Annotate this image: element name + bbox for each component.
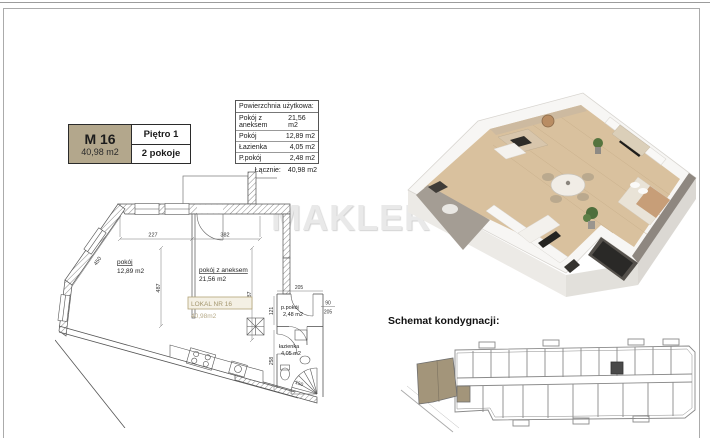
- wall-balcony-side: [248, 172, 256, 204]
- kitchen-fixtures: [170, 345, 263, 383]
- floor-schematic: [393, 330, 705, 438]
- area-table-header: Powierzchnia użytkowa:: [236, 101, 318, 113]
- room-aneks-area: 21,56 m2: [199, 276, 226, 283]
- dim-258: 258: [269, 357, 275, 366]
- room-pokoj-area: 12,89 m2: [117, 268, 144, 275]
- area-table-box: Powierzchnia użytkowa: Pokój z aneksem 2…: [235, 100, 319, 164]
- dim-227: 227: [148, 233, 157, 239]
- unit-id: M 16: [84, 131, 115, 147]
- row-value: 12,89 m2: [286, 133, 315, 140]
- floor-plan-drawing: 227 382 487 587 450 205 121 258 90 205 1…: [55, 168, 355, 428]
- unit-card-info-cells: Piętro 1 2 pokoje: [132, 125, 190, 163]
- dim-487: 487: [156, 283, 162, 292]
- room-ppokoj-area: 2,48 m2: [283, 312, 303, 318]
- table-row: Pokój 12,89 m2: [236, 131, 318, 142]
- render-3d-apartment: [408, 93, 696, 297]
- unit-floor: Piętro 1: [132, 125, 190, 144]
- dim-150: 150: [294, 380, 304, 389]
- row-label: Łazienka: [239, 144, 267, 151]
- lokal-label: LOKAL NR 16 40,98m2: [188, 297, 252, 320]
- area-table: Powierzchnia użytkowa: Pokój z aneksem 2…: [235, 100, 319, 174]
- listing-page: M 16 40,98 m2 Piętro 1 2 pokoje Powierzc…: [0, 0, 710, 438]
- dim-121: 121: [269, 307, 275, 316]
- balcony-door: [197, 205, 223, 241]
- table-row: Pokój z aneksem 21,56 m2: [236, 113, 318, 131]
- room-lazienka-name: łazienka: [279, 344, 300, 350]
- row-label: Pokój: [239, 133, 257, 140]
- top-rule: [0, 2, 710, 3]
- room-aneks-name: pokój z aneksem: [199, 267, 248, 274]
- row-value: 2,48 m2: [290, 155, 315, 162]
- render-3d: [398, 85, 710, 320]
- unit-total-area: 40,98 m2: [81, 147, 119, 158]
- row-value: 21,56 m2: [288, 115, 315, 129]
- room-lazienka-area: 4,05 m2: [281, 351, 301, 357]
- dim-382: 382: [220, 233, 229, 239]
- table-row: Łazienka 4,05 m2: [236, 142, 318, 153]
- table-row: P.pokój 2,48 m2: [236, 153, 318, 163]
- lokal-label-line2: 40,98m2: [191, 313, 217, 320]
- dim-door-height: 205: [324, 310, 333, 316]
- room-ppokoj-name: p.pokój: [281, 305, 299, 311]
- unit-card: M 16 40,98 m2 Piętro 1 2 pokoje: [68, 124, 191, 164]
- unit-card-id-cell: M 16 40,98 m2: [69, 125, 132, 163]
- dim-205: 205: [295, 285, 304, 291]
- lokal-label-line1: LOKAL NR 16: [191, 301, 232, 308]
- row-label: Pokój z aneksem: [239, 115, 288, 129]
- row-label: P.pokój: [239, 155, 261, 162]
- dim-door-width: 90: [325, 301, 331, 307]
- schematic-unit-highlight: [417, 358, 470, 404]
- row-value: 4,05 m2: [290, 144, 315, 151]
- dim-450: 450: [93, 256, 103, 267]
- vent-shaft-icon: [247, 318, 264, 335]
- room-pokoj-name: pokój: [117, 259, 133, 266]
- schematic-elevator: [611, 362, 623, 374]
- unit-rooms: 2 pokoje: [132, 144, 190, 164]
- balcony-outline: [183, 176, 277, 204]
